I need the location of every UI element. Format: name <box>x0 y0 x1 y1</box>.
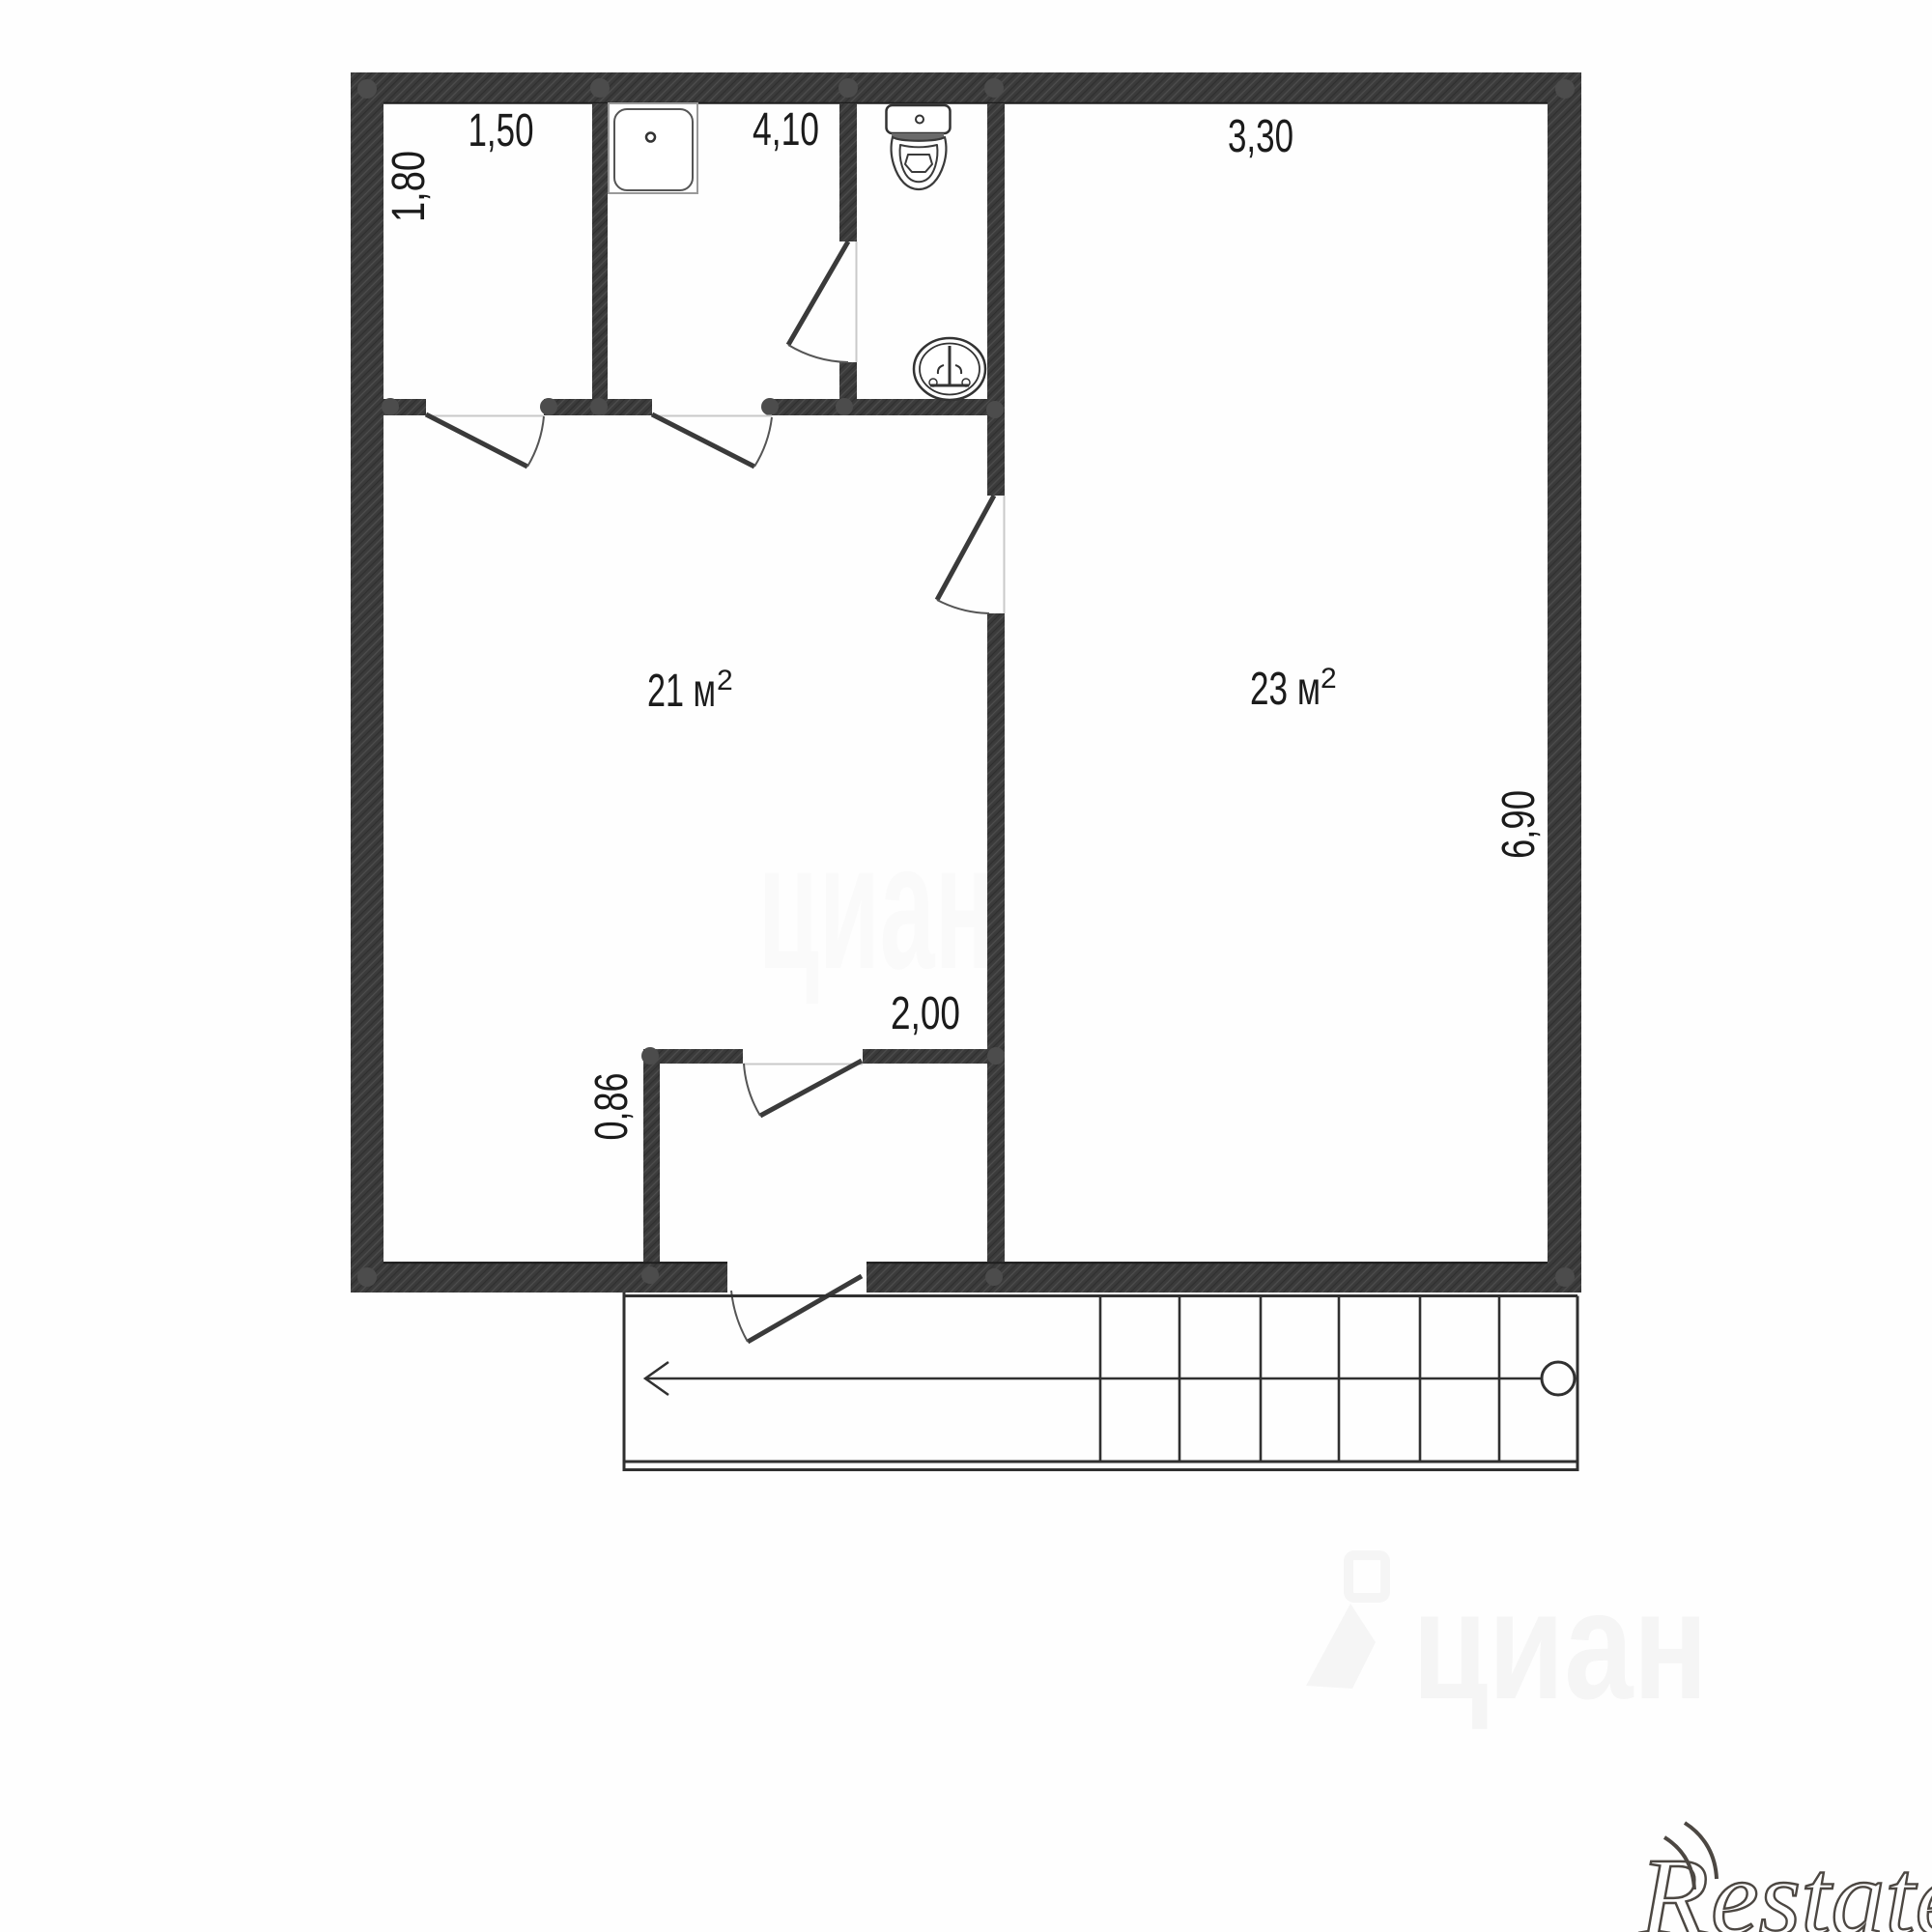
svg-text:4,10: 4,10 <box>753 104 819 156</box>
svg-text:циан: циан <box>1412 1558 1708 1731</box>
svg-text:R: R <box>1638 1834 1709 1932</box>
svg-text:0,86: 0,86 <box>586 1073 638 1141</box>
svg-text:2,00: 2,00 <box>891 988 960 1039</box>
svg-text:6,90: 6,90 <box>1493 790 1545 859</box>
svg-text:2: 2 <box>717 665 733 696</box>
svg-text:2: 2 <box>1321 663 1337 695</box>
svg-text:3,30: 3,30 <box>1228 111 1293 162</box>
svg-text:циан: циан <box>758 805 994 1006</box>
svg-text:1,80: 1,80 <box>384 151 435 222</box>
svg-text:23 м: 23 м <box>1250 664 1321 715</box>
svg-text:estate: estate <box>1711 1838 1932 1932</box>
svg-text:21 м: 21 м <box>647 666 716 717</box>
svg-text:1,50: 1,50 <box>469 105 534 156</box>
